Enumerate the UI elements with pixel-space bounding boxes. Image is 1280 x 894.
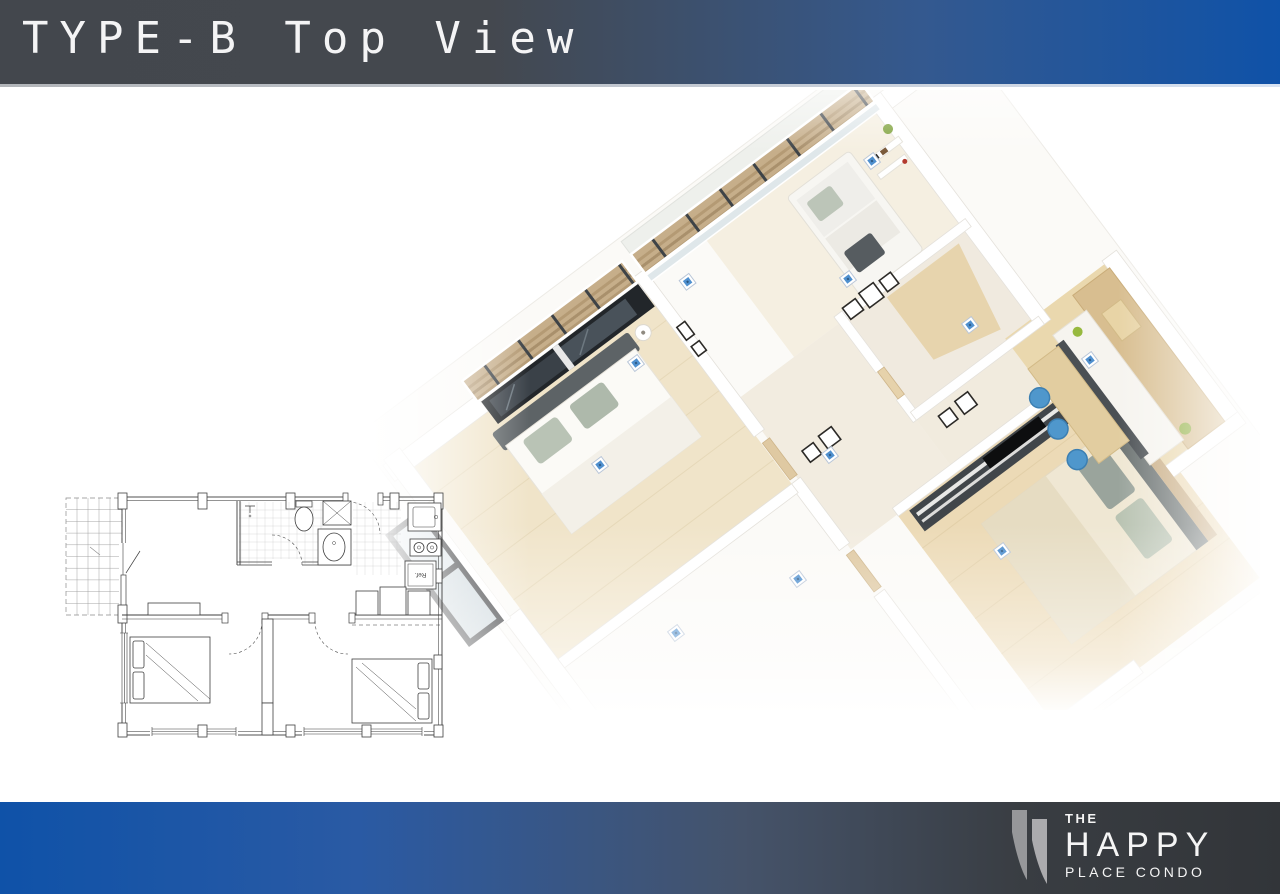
- header-divider-line: [0, 84, 1280, 87]
- tv-console: [148, 603, 200, 615]
- floor-plan-drawing: Ref.: [60, 485, 455, 750]
- refrigerator-label: Ref.: [414, 571, 426, 578]
- fade-top: [370, 90, 1260, 710]
- bedroom1-door-swing: [229, 621, 262, 654]
- balcony: [66, 498, 122, 615]
- logo-happy-text: HAPPY: [1065, 827, 1215, 863]
- bedroom1-bed-plan: [130, 637, 210, 703]
- toilet: [296, 501, 312, 507]
- logo-the-text: THE: [1065, 812, 1215, 826]
- shower: [245, 506, 255, 513]
- stove: [410, 539, 441, 556]
- floor-plan-area: Ref.: [60, 485, 455, 750]
- happy-place-logo-icon: [1010, 808, 1052, 888]
- bedroom2-door-swing: [315, 621, 348, 654]
- slide-page: { "header": { "title": "TYPE-B Top View"…: [0, 0, 1280, 894]
- bathroom: [237, 501, 401, 575]
- bedroom2-bed-plan: [352, 659, 432, 723]
- central-wall: [262, 619, 273, 735]
- logo-place-condo-text: PLACE CONDO: [1065, 864, 1215, 880]
- render-area: [370, 90, 1260, 710]
- 3d-top-view-render: [370, 90, 1260, 710]
- happy-place-logo: THE HAPPY PLACE CONDO: [1010, 808, 1215, 888]
- kitchen-fixtures: Ref.: [405, 503, 441, 589]
- header-bar: TYPE-B Top View: [0, 0, 1280, 84]
- page-title: TYPE-B Top View: [22, 13, 584, 64]
